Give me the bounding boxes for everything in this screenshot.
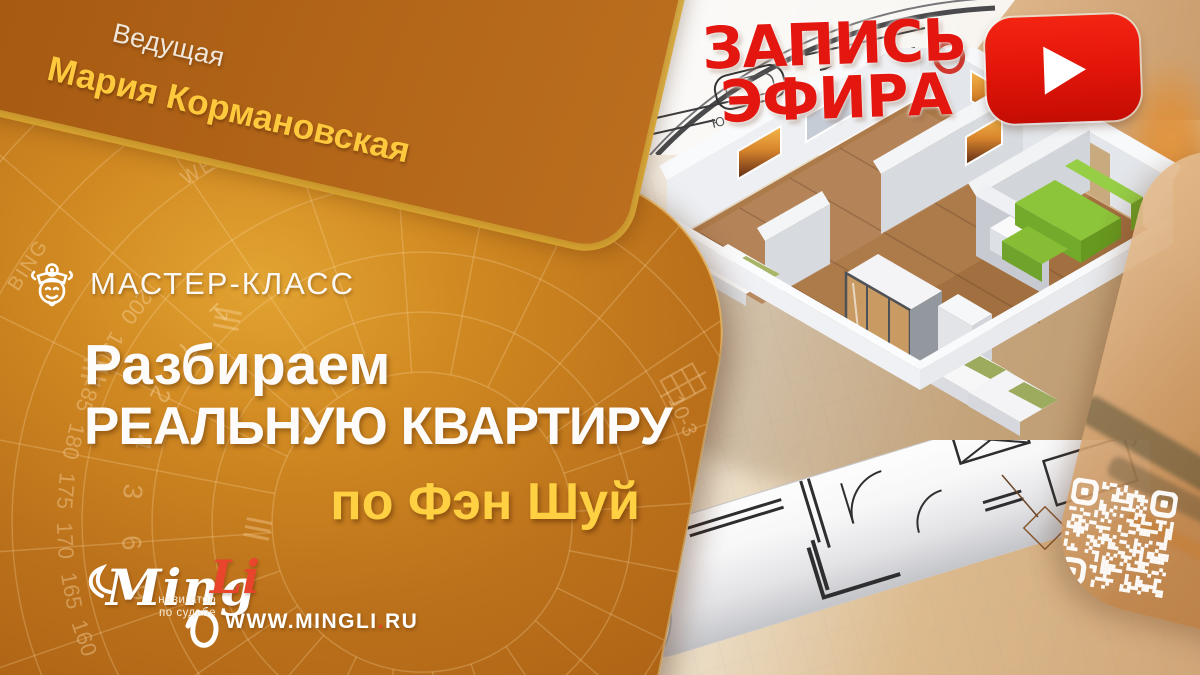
title-line3: по Фэн Шуй [240, 472, 640, 532]
recording-badge: ЗАПИСЬ ЭФИРА [688, 13, 982, 131]
title-line1: Разбираем [84, 332, 390, 398]
masterclass-label: МАСТЕР-КЛАСС [90, 266, 355, 302]
svg-text:3: 3 [117, 483, 148, 501]
thumbnail-stage: Ю [0, 0, 1200, 675]
youtube-play-button[interactable] [984, 13, 1142, 124]
website-link[interactable]: WWW.MINGLI.RU [225, 610, 418, 634]
badge-line2: ЭФИРА [690, 67, 982, 131]
svg-text:175: 175 [52, 471, 80, 510]
qr-code[interactable] [1058, 477, 1179, 598]
mingli-logo: Ming Li навигатор по судьбе WWW.MINGLI.R… [80, 550, 420, 660]
website-red-dot: . [378, 610, 385, 633]
masterclass-row: МАСТЕР-КЛАСС [28, 258, 355, 310]
logo-li: Li [210, 550, 260, 604]
svg-text:170: 170 [52, 522, 79, 560]
title-line2: РЕАЛЬНУЮ КВАРТИРУ [84, 396, 672, 457]
logo-tagline: навигатор по судьбе [128, 594, 216, 619]
svg-text:6: 6 [116, 534, 147, 551]
deity-face-icon [28, 258, 76, 310]
play-triangle-icon [1043, 45, 1087, 94]
